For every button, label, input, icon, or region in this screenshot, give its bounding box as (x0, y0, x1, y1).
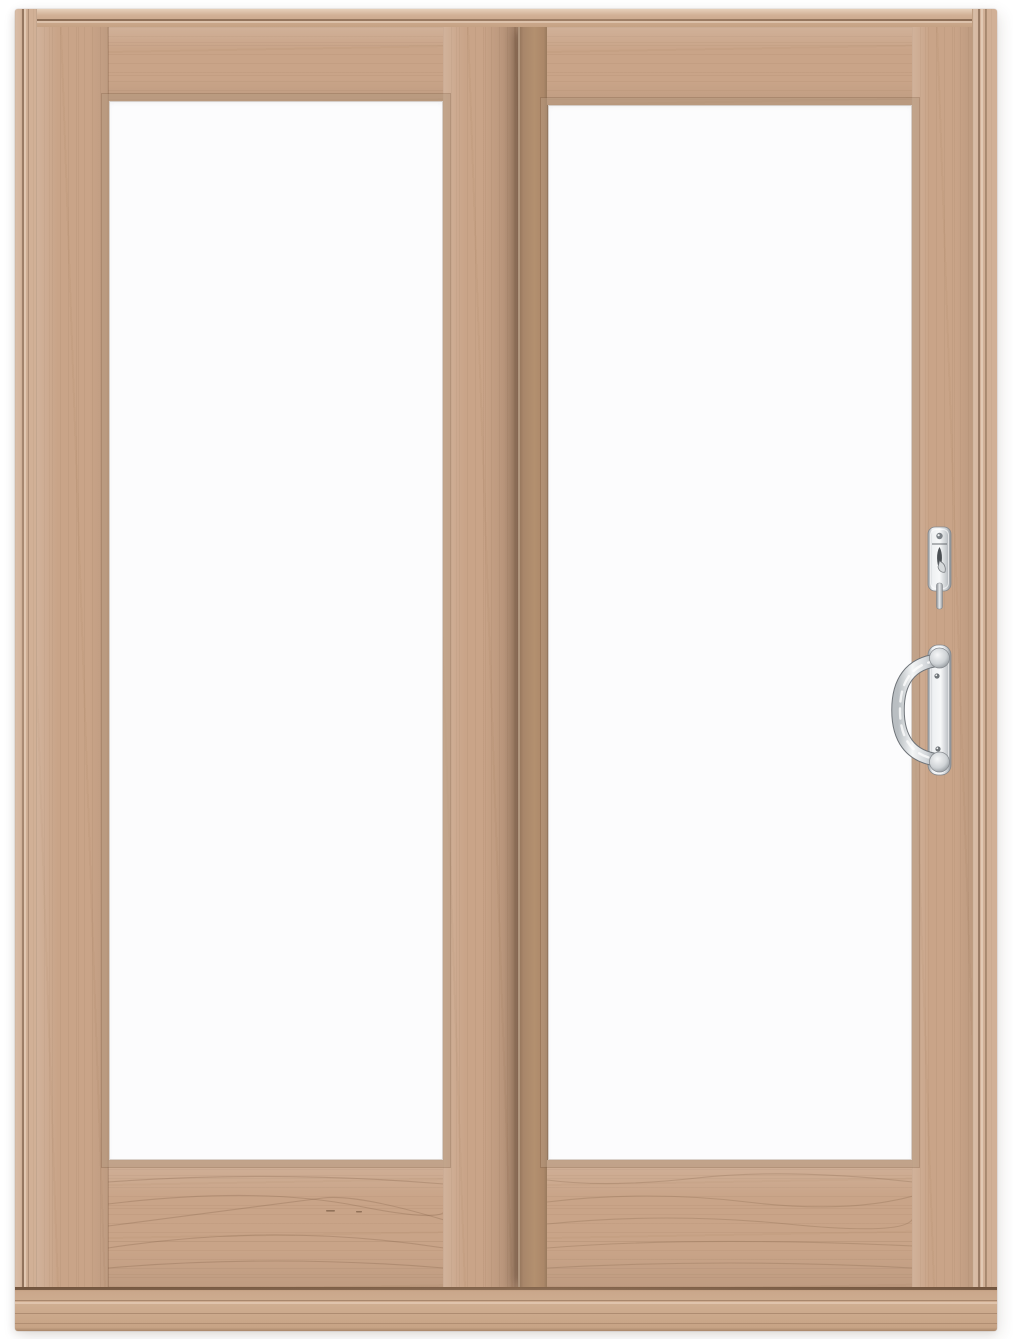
handle-screw-bottom (935, 746, 940, 751)
left-jamb-groove-inner (28, 9, 29, 1331)
sill-step-line (15, 1313, 997, 1314)
head-jamb-groove-highlight (15, 21, 997, 23)
glass-pane-right (548, 105, 912, 1160)
right-jamb-groove-highlight (981, 9, 983, 1331)
wood-grain-decoration (547, 1160, 913, 1287)
sill-step-line (15, 1300, 997, 1301)
frame-left-jamb (15, 9, 37, 1331)
left-panel-top-rail (108, 27, 444, 101)
frame-right-jamb (972, 9, 997, 1331)
wood-grain-decoration (108, 1160, 444, 1289)
thumb-turn-lock (921, 517, 961, 621)
left-jamb-groove-highlight (24, 9, 26, 1331)
handle-graphic (889, 637, 961, 787)
sill-step-line (15, 1323, 997, 1324)
photo-background: { "scene": { "type": "product-photo", "s… (0, 0, 1013, 1339)
door-panel-fixed-left (36, 27, 518, 1289)
sill-track-line (15, 1287, 997, 1290)
lock-graphic (921, 517, 961, 621)
left-panel-meeting-stile (443, 27, 518, 1289)
sliding-patio-door (15, 9, 997, 1331)
handle-top-boss (930, 648, 950, 668)
right-panel-bottom-rail (547, 1160, 913, 1287)
frame-head-jamb (15, 9, 997, 27)
handle-bottom-boss (930, 752, 950, 772)
lock-tail-pin (937, 583, 943, 609)
right-jamb-groove (978, 9, 980, 1331)
handle-screw-top (934, 673, 939, 678)
left-panel-left-stile (36, 27, 109, 1289)
meeting-stile-shadow (443, 27, 518, 1289)
left-panel-bottom-rail (108, 1160, 444, 1289)
right-jamb-groove-inner (985, 9, 987, 1331)
right-panel-meeting-stile-edge (518, 27, 548, 1287)
sill-step-highlight (15, 1302, 997, 1304)
frame-sill-threshold (15, 1287, 997, 1331)
lock-screw (936, 533, 942, 539)
right-panel-top-rail (547, 27, 913, 105)
glass-pane-left (109, 101, 443, 1160)
pull-handle (889, 637, 961, 787)
